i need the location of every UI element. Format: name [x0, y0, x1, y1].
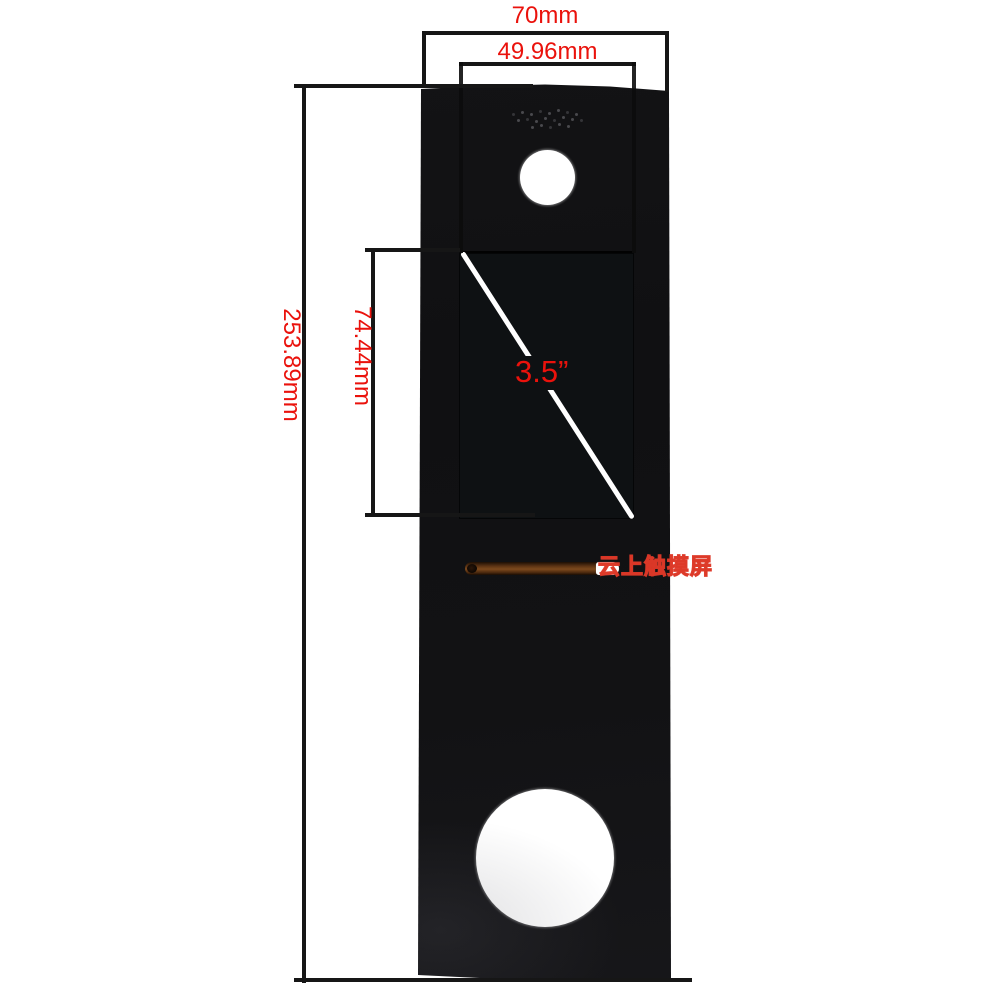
- speaker-hole-dot: [558, 123, 561, 126]
- speaker-hole-dot: [535, 120, 538, 123]
- dimension-tick: [422, 31, 426, 87]
- speaker-hole-dot: [544, 117, 547, 120]
- watermark-text: 云上触摸屏: [598, 549, 713, 581]
- speaker-hole-dot: [517, 119, 520, 122]
- display-window: [459, 251, 634, 519]
- display-width-label: 49.96mm: [459, 40, 636, 64]
- dimension-tick: [665, 31, 669, 92]
- display-diagonal-label: 3.5”: [511, 356, 572, 390]
- dimension-line: [422, 31, 669, 35]
- fpc-slot-hole: [467, 564, 477, 573]
- display-height-label: 74.44mm: [350, 306, 374, 406]
- speaker-hole-dot: [557, 109, 560, 112]
- dimension-tick: [459, 62, 463, 253]
- speaker-hole-dot: [549, 126, 552, 129]
- speaker-hole-dot: [548, 112, 551, 115]
- dimension-tick: [294, 84, 533, 88]
- speaker-hole-dot: [526, 118, 529, 121]
- glass-panel: 3.5”: [0, 0, 1000, 1000]
- bottom-circular-cutout: [476, 789, 614, 927]
- speaker-hole-dot: [553, 119, 556, 122]
- speaker-hole-dot: [531, 126, 534, 129]
- dimension-tick: [632, 62, 636, 253]
- speaker-hole-dot: [540, 124, 543, 127]
- speaker-hole-dot: [539, 110, 542, 113]
- camera-cutout-hole: [520, 150, 575, 205]
- dimension-tick: [365, 248, 460, 252]
- speaker-hole-dot: [575, 113, 578, 116]
- speaker-hole-dot: [566, 111, 569, 114]
- fpc-slot: [465, 562, 598, 575]
- dimension-tick: [365, 513, 535, 517]
- outer-height-label: 253.89mm: [279, 308, 303, 421]
- speaker-hole-dot: [571, 118, 574, 121]
- product-dimension-photo: 3.5” 70mm 49.96mm 253.89mm 74.44mm 云上触摸屏: [0, 0, 1000, 1000]
- speaker-hole-dot: [562, 116, 565, 119]
- dimension-line: [302, 84, 306, 983]
- outer-width-label: 70mm: [423, 4, 667, 28]
- speaker-hole-dot: [580, 119, 583, 122]
- speaker-hole-dot: [521, 111, 524, 114]
- speaker-hole-dot: [530, 113, 533, 116]
- speaker-hole-dot: [567, 125, 570, 128]
- diagonal-measure-line: [460, 251, 635, 520]
- dimension-tick: [294, 978, 692, 982]
- speaker-hole-dot: [512, 113, 515, 116]
